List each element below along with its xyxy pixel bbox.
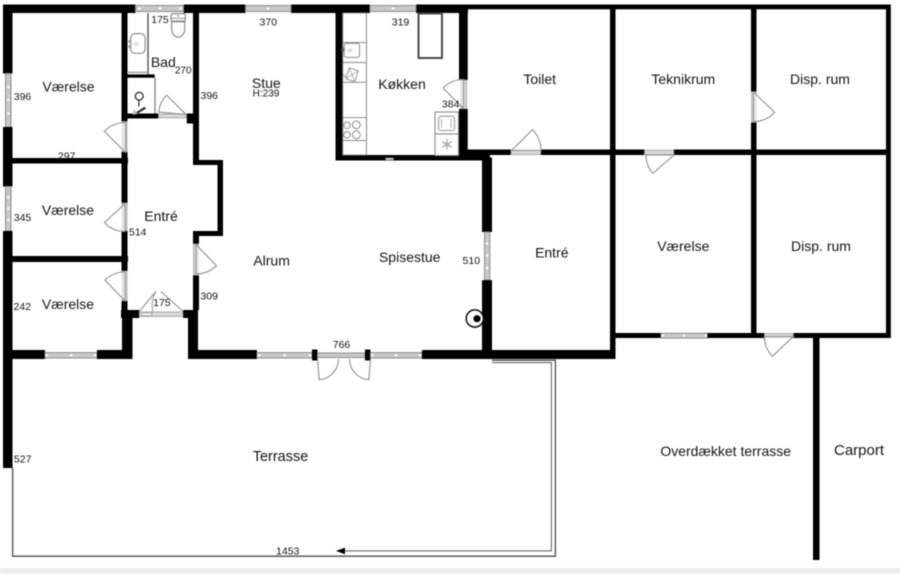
svg-text:Toilet: Toilet — [523, 71, 556, 87]
svg-text:Værelse: Værelse — [657, 238, 709, 254]
svg-text:Overdækket terrasse: Overdækket terrasse — [660, 443, 791, 459]
svg-text:Entré: Entré — [144, 208, 178, 224]
svg-text:Teknikrum: Teknikrum — [651, 71, 715, 87]
svg-text:Entré: Entré — [535, 245, 569, 261]
svg-text:Terrasse: Terrasse — [253, 449, 309, 465]
svg-text:345: 345 — [14, 212, 32, 224]
svg-text:1453: 1453 — [276, 546, 300, 558]
svg-text:510: 510 — [463, 255, 481, 267]
svg-text:Disp. rum: Disp. rum — [790, 71, 850, 87]
svg-text:H:239: H:239 — [253, 89, 280, 100]
svg-text:309: 309 — [200, 290, 218, 302]
svg-text:Bad: Bad — [151, 54, 176, 70]
svg-text:Disp. rum: Disp. rum — [791, 238, 851, 254]
svg-text:384: 384 — [442, 99, 460, 111]
svg-text:319: 319 — [392, 17, 410, 29]
svg-text:Carport: Carport — [834, 442, 885, 459]
svg-text:Værelse: Værelse — [42, 296, 94, 312]
svg-text:766: 766 — [333, 339, 351, 351]
svg-text:242: 242 — [14, 301, 32, 313]
svg-text:270: 270 — [175, 66, 192, 77]
svg-text:Spisestue: Spisestue — [379, 249, 441, 265]
svg-text:175: 175 — [153, 297, 171, 309]
svg-text:514: 514 — [129, 227, 147, 239]
svg-text:396: 396 — [14, 91, 32, 103]
svg-text:Værelse: Værelse — [42, 79, 94, 95]
svg-text:Køkken: Køkken — [378, 76, 425, 92]
svg-text:Alrum: Alrum — [253, 253, 290, 269]
svg-text:396: 396 — [201, 90, 219, 102]
svg-text:175: 175 — [151, 14, 169, 26]
svg-text:297: 297 — [58, 151, 76, 163]
svg-text:527: 527 — [14, 454, 32, 466]
svg-text:Værelse: Værelse — [42, 202, 94, 218]
svg-text:370: 370 — [260, 17, 278, 29]
